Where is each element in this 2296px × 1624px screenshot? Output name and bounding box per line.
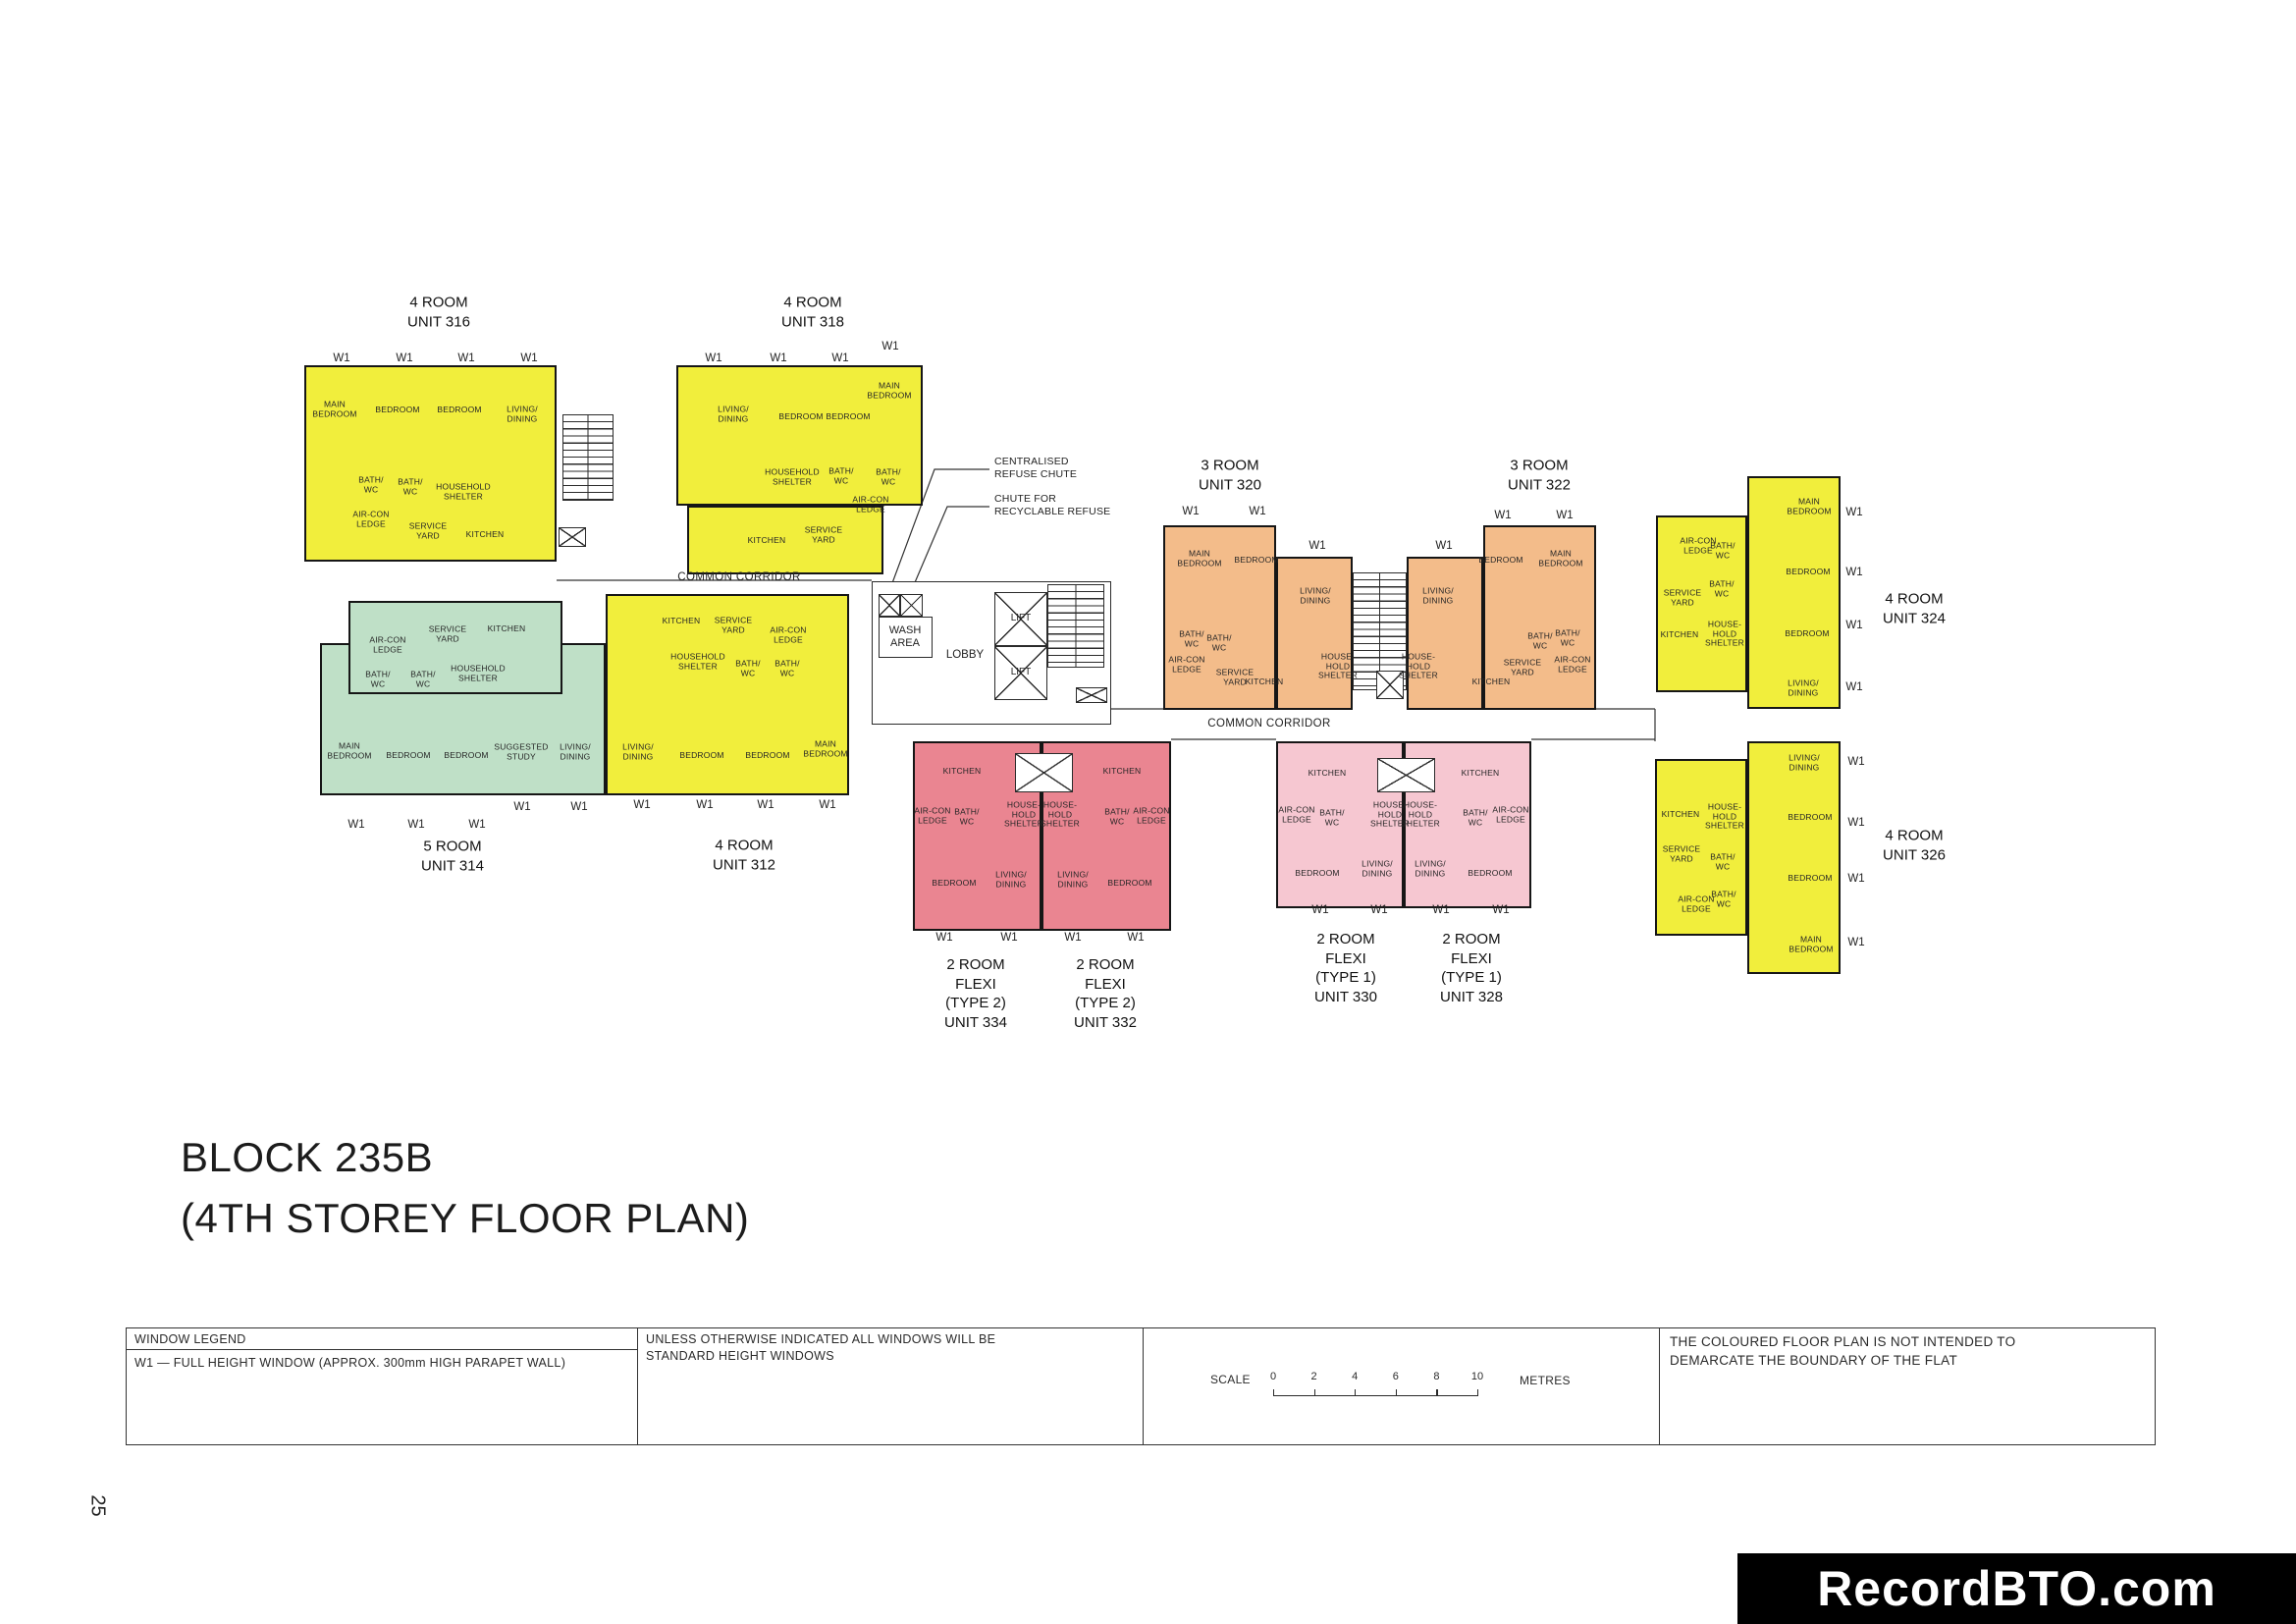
page-title-line1: BLOCK 235B bbox=[181, 1127, 749, 1188]
window-label-w1: W1 bbox=[819, 799, 835, 811]
room-label: AIR-CON LEDGE bbox=[369, 635, 405, 654]
room-label: BEDROOM bbox=[444, 751, 488, 761]
room-label: BATH/ WC bbox=[876, 467, 900, 486]
room-label: BEDROOM bbox=[679, 751, 723, 761]
unit-320-label: 3 ROOM UNIT 320 bbox=[1199, 457, 1261, 495]
window-label-w1: W1 bbox=[770, 352, 786, 364]
annotation-recyclable-refuse: CHUTE FOR RECYCLABLE REFUSE bbox=[994, 493, 1110, 518]
room-label: LIVING/ DINING bbox=[1789, 753, 1820, 772]
room-label: SERVICE YARD bbox=[1504, 658, 1542, 677]
room-label: HOUSE- HOLD SHELTER bbox=[1705, 803, 1744, 832]
scale-tick-mark bbox=[1355, 1389, 1356, 1396]
window-label-w1: W1 bbox=[396, 352, 412, 364]
room-label: HOUSE- HOLD SHELTER bbox=[1401, 801, 1440, 830]
refuse-chute bbox=[879, 594, 900, 617]
room-label: KITCHEN bbox=[1246, 677, 1284, 687]
room-label: LIVING/ DINING bbox=[718, 405, 749, 423]
window-legend-item: W1 — FULL HEIGHT WINDOW (APPROX. 300mm H… bbox=[134, 1356, 565, 1370]
room-label: KITCHEN bbox=[488, 624, 526, 634]
room-label: LIVING/ DINING bbox=[1415, 859, 1446, 878]
room-label: LIVING/ DINING bbox=[1422, 586, 1454, 605]
window-label-w1: W1 bbox=[1845, 567, 1862, 578]
room-label: LIVING/ DINING bbox=[1300, 586, 1331, 605]
window-label-w1: W1 bbox=[1249, 506, 1265, 517]
unit-328-label: 2 ROOM FLEXI (TYPE 1) UNIT 328 bbox=[1440, 930, 1503, 1006]
window-label-w1: W1 bbox=[633, 799, 650, 811]
room-label: AIR-CON LEDGE bbox=[1678, 894, 1714, 913]
room-label: LIVING/ DINING bbox=[1788, 678, 1819, 697]
room-label: SERVICE YARD bbox=[1664, 588, 1702, 607]
room-label: KITCHEN bbox=[1472, 677, 1511, 687]
window-label-w1: W1 bbox=[457, 352, 474, 364]
room-label: BATH/ WC bbox=[828, 466, 853, 485]
window-label-w1: W1 bbox=[513, 801, 530, 813]
room-label: BEDROOM bbox=[1478, 556, 1522, 566]
room-label: HOUSEHOLD SHELTER bbox=[451, 664, 506, 682]
room-label: LIVING/ DINING bbox=[1362, 859, 1393, 878]
legend-col-note: UNLESS OTHERWISE INDICATED ALL WINDOWS W… bbox=[638, 1328, 1144, 1444]
service-shaft bbox=[559, 527, 586, 547]
room-label: LIVING/ DINING bbox=[995, 870, 1027, 889]
room-label: BATH/ WC bbox=[954, 807, 979, 826]
room-label: KITCHEN bbox=[1103, 767, 1142, 777]
window-label-w1: W1 bbox=[468, 819, 485, 831]
window-label-w1: W1 bbox=[333, 352, 349, 364]
room-label: SERVICE YARD bbox=[409, 521, 448, 540]
unit-320-area bbox=[1276, 557, 1353, 710]
room-label: BATH/ WC bbox=[1104, 807, 1129, 826]
room-label: BATH/ WC bbox=[1709, 579, 1734, 598]
window-label-w1: W1 bbox=[1432, 904, 1449, 916]
room-label: BEDROOM bbox=[386, 751, 430, 761]
room-label: HOUSE- HOLD SHELTER bbox=[1705, 621, 1744, 649]
room-label: BATH/ WC bbox=[774, 659, 799, 677]
window-label-w1: W1 bbox=[347, 819, 364, 831]
room-label: BATH/ WC bbox=[365, 670, 390, 688]
scale-bar-line bbox=[1273, 1395, 1477, 1396]
legend-col-boundary: THE COLOURED FLOOR PLAN IS NOT INTENDED … bbox=[1660, 1328, 2157, 1444]
room-label: BATH/ WC bbox=[358, 475, 383, 494]
room-label: KITCHEN bbox=[466, 530, 505, 540]
room-label: MAIN BEDROOM bbox=[803, 739, 847, 758]
unit-314-label: 5 ROOM UNIT 314 bbox=[421, 838, 484, 876]
window-label-w1: W1 bbox=[1845, 507, 1862, 518]
scale-tick-number: 4 bbox=[1352, 1371, 1358, 1382]
window-label-w1: W1 bbox=[1494, 510, 1511, 521]
floor-plan-page: MAIN BEDROOMBEDROOMBEDROOMLIVING/ DINING… bbox=[0, 0, 2296, 1624]
room-label: HOUSEHOLD SHELTER bbox=[765, 467, 820, 486]
room-label: SERVICE YARD bbox=[1663, 844, 1701, 863]
room-label: HOUSE- HOLD SHELTER bbox=[1318, 653, 1358, 681]
window-label-w1: W1 bbox=[696, 799, 713, 811]
room-label: BEDROOM bbox=[1786, 568, 1830, 577]
unit-332-label: 2 ROOM FLEXI (TYPE 2) UNIT 332 bbox=[1074, 955, 1137, 1032]
window-label-w1: W1 bbox=[881, 341, 898, 352]
room-label: KITCHEN bbox=[943, 767, 982, 777]
room-label: AIR-CON LEDGE bbox=[1168, 655, 1204, 674]
window-label-w1: W1 bbox=[1845, 620, 1862, 631]
room-label: BATH/ WC bbox=[1319, 808, 1344, 827]
unit-334-label: 2 ROOM FLEXI (TYPE 2) UNIT 334 bbox=[944, 955, 1007, 1032]
room-label: HOUSE- HOLD SHELTER bbox=[1399, 653, 1438, 681]
window-label-w1: W1 bbox=[1847, 937, 1864, 948]
room-label: BEDROOM bbox=[1295, 869, 1339, 879]
window-label-w1: W1 bbox=[1847, 756, 1864, 768]
scale-label: SCALE bbox=[1210, 1373, 1251, 1386]
window-label-w1: W1 bbox=[1492, 904, 1509, 916]
room-label: BEDROOM bbox=[778, 412, 823, 422]
legend-col-window: WINDOW LEGEND W1 — FULL HEIGHT WINDOW (A… bbox=[127, 1328, 638, 1444]
room-label: MAIN BEDROOM bbox=[312, 400, 356, 418]
room-label: AIR-CON LEDGE bbox=[1680, 536, 1716, 555]
room-label: AIR-CON LEDGE bbox=[352, 510, 389, 528]
room-label: BEDROOM bbox=[745, 751, 789, 761]
scale-tick-mark bbox=[1477, 1389, 1478, 1396]
unit-324-label: 4 ROOM UNIT 324 bbox=[1883, 590, 1946, 628]
room-label: AIR-CON LEDGE bbox=[770, 625, 806, 644]
lift-label: LIFT bbox=[1011, 613, 1032, 624]
room-label: MAIN BEDROOM bbox=[327, 741, 371, 760]
room-label: AIR-CON LEDGE bbox=[1133, 806, 1169, 825]
staircase bbox=[1047, 584, 1104, 668]
window-label-w1: W1 bbox=[1308, 540, 1325, 552]
room-label: LIVING/ DINING bbox=[507, 405, 538, 423]
room-label: AIR-CON LEDGE bbox=[1554, 655, 1590, 674]
room-label: BEDROOM bbox=[1107, 879, 1151, 889]
room-label: AIR-CON LEDGE bbox=[1492, 805, 1528, 824]
window-label-w1: W1 bbox=[1435, 540, 1452, 552]
room-label: BEDROOM bbox=[375, 406, 419, 415]
window-label-w1: W1 bbox=[1556, 510, 1573, 521]
window-label-w1: W1 bbox=[520, 352, 537, 364]
room-label: BATH/ WC bbox=[410, 670, 435, 688]
window-label-w1: W1 bbox=[1311, 904, 1328, 916]
room-label: BEDROOM bbox=[1788, 874, 1832, 884]
room-label: HOUSEHOLD SHELTER bbox=[670, 652, 725, 671]
corridor-label: COMMON CORRIDOR bbox=[677, 571, 800, 583]
windows-note-line2: STANDARD HEIGHT WINDOWS bbox=[646, 1349, 834, 1363]
window-label-w1: W1 bbox=[705, 352, 721, 364]
room-label: MAIN BEDROOM bbox=[1789, 935, 1833, 953]
room-label: BATH/ WC bbox=[1206, 633, 1231, 652]
lift-label: LIFT bbox=[1011, 667, 1032, 678]
room-label: LIVING/ DINING bbox=[622, 742, 654, 761]
scale-tick-mark bbox=[1396, 1389, 1397, 1396]
scale-tick-number: 8 bbox=[1433, 1371, 1439, 1382]
service-shaft bbox=[1377, 758, 1435, 792]
window-label-w1: W1 bbox=[1845, 681, 1862, 693]
scale-tick-mark bbox=[1273, 1389, 1274, 1396]
room-label: BEDROOM bbox=[1468, 869, 1512, 879]
watermark-banner: RecordBTO.com bbox=[1737, 1553, 2296, 1624]
window-label-w1: W1 bbox=[1182, 506, 1199, 517]
page-title: BLOCK 235B (4TH STOREY FLOOR PLAN) bbox=[181, 1127, 749, 1249]
scale-units: METRES bbox=[1520, 1374, 1571, 1387]
unit-318-label: 4 ROOM UNIT 318 bbox=[781, 294, 844, 332]
room-label: BATH/ WC bbox=[1527, 631, 1552, 650]
legend-divider bbox=[127, 1349, 638, 1350]
unit-326-label: 4 ROOM UNIT 326 bbox=[1883, 827, 1946, 865]
scale-tick-number: 2 bbox=[1311, 1371, 1317, 1382]
room-label: HOUSEHOLD SHELTER bbox=[436, 482, 491, 501]
room-label: BEDROOM bbox=[1234, 556, 1278, 566]
annotation-refuse-chute: CENTRALISED REFUSE CHUTE bbox=[994, 456, 1077, 481]
window-label-w1: W1 bbox=[831, 352, 848, 364]
room-label: LIVING/ DINING bbox=[560, 742, 591, 761]
room-label: BEDROOM bbox=[932, 879, 976, 889]
legend-col-scale bbox=[1144, 1328, 1660, 1444]
unit-322-label: 3 ROOM UNIT 322 bbox=[1508, 457, 1571, 495]
recyclable-chute bbox=[900, 594, 923, 617]
window-label-w1: W1 bbox=[407, 819, 424, 831]
room-label: KITCHEN bbox=[1462, 769, 1500, 779]
scale-tick-mark bbox=[1436, 1389, 1437, 1396]
window-label-w1: W1 bbox=[1064, 932, 1081, 944]
room-label: MAIN BEDROOM bbox=[1787, 497, 1831, 515]
room-label: KITCHEN bbox=[1662, 810, 1700, 820]
window-label-w1: W1 bbox=[757, 799, 774, 811]
room-label: HOUSE- HOLD SHELTER bbox=[1041, 801, 1080, 830]
window-label-w1: W1 bbox=[1847, 817, 1864, 829]
room-label: AIR-CON LEDGE bbox=[852, 495, 888, 514]
room-label: BEDROOM bbox=[1785, 629, 1829, 639]
window-label-w1: W1 bbox=[935, 932, 952, 944]
legend-table: WINDOW LEGEND W1 — FULL HEIGHT WINDOW (A… bbox=[126, 1327, 2156, 1445]
service-shaft bbox=[1015, 753, 1073, 792]
staircase bbox=[562, 414, 614, 501]
page-title-line2: (4TH STOREY FLOOR PLAN) bbox=[181, 1188, 749, 1249]
room-label: KITCHEN bbox=[1661, 630, 1699, 640]
room-label: BATH/ WC bbox=[1710, 852, 1735, 871]
room-label: SERVICE YARD bbox=[715, 616, 753, 634]
scale-tick-mark bbox=[1314, 1389, 1315, 1396]
room-label: MAIN BEDROOM bbox=[867, 381, 911, 400]
window-label-w1: W1 bbox=[1127, 932, 1144, 944]
window-label-w1: W1 bbox=[1370, 904, 1387, 916]
window-label-w1: W1 bbox=[1847, 873, 1864, 885]
room-label: KITCHEN bbox=[1308, 769, 1347, 779]
room-label: BATH/ WC bbox=[1463, 808, 1487, 827]
scale-tick-number: 10 bbox=[1471, 1371, 1483, 1382]
unit-312-label: 4 ROOM UNIT 312 bbox=[713, 837, 775, 875]
lobby-label: LOBBY bbox=[946, 649, 984, 663]
room-label: BATH/ WC bbox=[735, 659, 760, 677]
wash-area-label: WASH AREA bbox=[889, 624, 922, 650]
windows-note-line1: UNLESS OTHERWISE INDICATED ALL WINDOWS W… bbox=[646, 1332, 995, 1346]
room-label: BEDROOM bbox=[437, 406, 481, 415]
unit-330-label: 2 ROOM FLEXI (TYPE 1) UNIT 330 bbox=[1314, 930, 1377, 1006]
room-label: AIR-CON LEDGE bbox=[1278, 805, 1314, 824]
room-label: MAIN BEDROOM bbox=[1177, 549, 1221, 568]
scale-tick-number: 0 bbox=[1270, 1371, 1276, 1382]
room-label: BEDROOM bbox=[1788, 813, 1832, 823]
scale-tick-number: 6 bbox=[1393, 1371, 1399, 1382]
room-label: BATH/ WC bbox=[1179, 629, 1203, 648]
room-label: AIR-CON LEDGE bbox=[914, 806, 950, 825]
boundary-note-line1: THE COLOURED FLOOR PLAN IS NOT INTENDED … bbox=[1670, 1334, 2015, 1349]
unit-316-label: 4 ROOM UNIT 316 bbox=[407, 294, 470, 332]
room-label: BATH/ WC bbox=[1555, 628, 1579, 647]
room-label: BATH/ WC bbox=[1711, 890, 1735, 908]
window-label-w1: W1 bbox=[1000, 932, 1017, 944]
room-label: BATH/ WC bbox=[398, 477, 422, 496]
room-label: LIVING/ DINING bbox=[1057, 870, 1089, 889]
room-label: BEDROOM bbox=[826, 412, 870, 422]
corridor-label: COMMON CORRIDOR bbox=[1207, 718, 1330, 730]
room-label: KITCHEN bbox=[748, 536, 786, 546]
room-label: SERVICE YARD bbox=[429, 624, 467, 643]
service-shaft bbox=[1076, 687, 1107, 703]
watermark-text: RecordBTO.com bbox=[1817, 1560, 2216, 1617]
room-label: SUGGESTED STUDY bbox=[494, 742, 548, 761]
room-label: MAIN BEDROOM bbox=[1538, 549, 1582, 568]
window-legend-title: WINDOW LEGEND bbox=[134, 1332, 246, 1346]
room-label: HOUSE- HOLD SHELTER bbox=[1004, 801, 1043, 830]
room-label: SERVICE YARD bbox=[805, 525, 843, 544]
boundary-note-line2: DEMARCATE THE BOUNDARY OF THE FLAT bbox=[1670, 1353, 1957, 1368]
window-label-w1: W1 bbox=[570, 801, 587, 813]
page-number: 25 bbox=[86, 1494, 109, 1516]
room-label: KITCHEN bbox=[663, 617, 701, 626]
